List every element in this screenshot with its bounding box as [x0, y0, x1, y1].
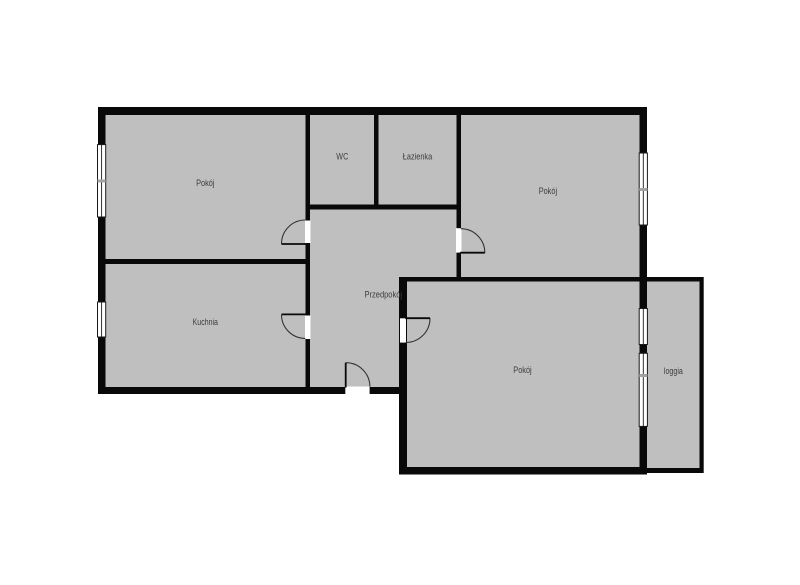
svg-text:loggia: loggia: [664, 366, 683, 376]
svg-text:Łazienka: Łazienka: [403, 151, 432, 161]
svg-text:Kuchnia: Kuchnia: [193, 317, 218, 327]
svg-text:Przedpokój: Przedpokój: [365, 289, 403, 299]
svg-text:Pokój: Pokój: [196, 178, 214, 188]
svg-text:Pokój: Pokój: [513, 365, 531, 375]
svg-text:WC: WC: [336, 151, 348, 161]
svg-text:Pokój: Pokój: [539, 186, 557, 196]
